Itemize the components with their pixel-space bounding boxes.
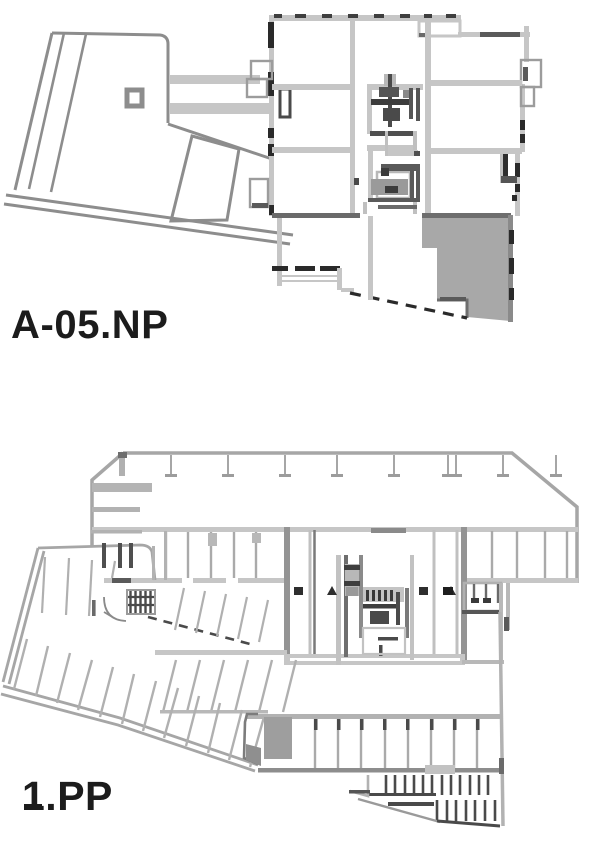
svg-text:1.PP: 1.PP (22, 773, 113, 819)
svg-text:A-05.NP: A-05.NP (11, 303, 169, 347)
